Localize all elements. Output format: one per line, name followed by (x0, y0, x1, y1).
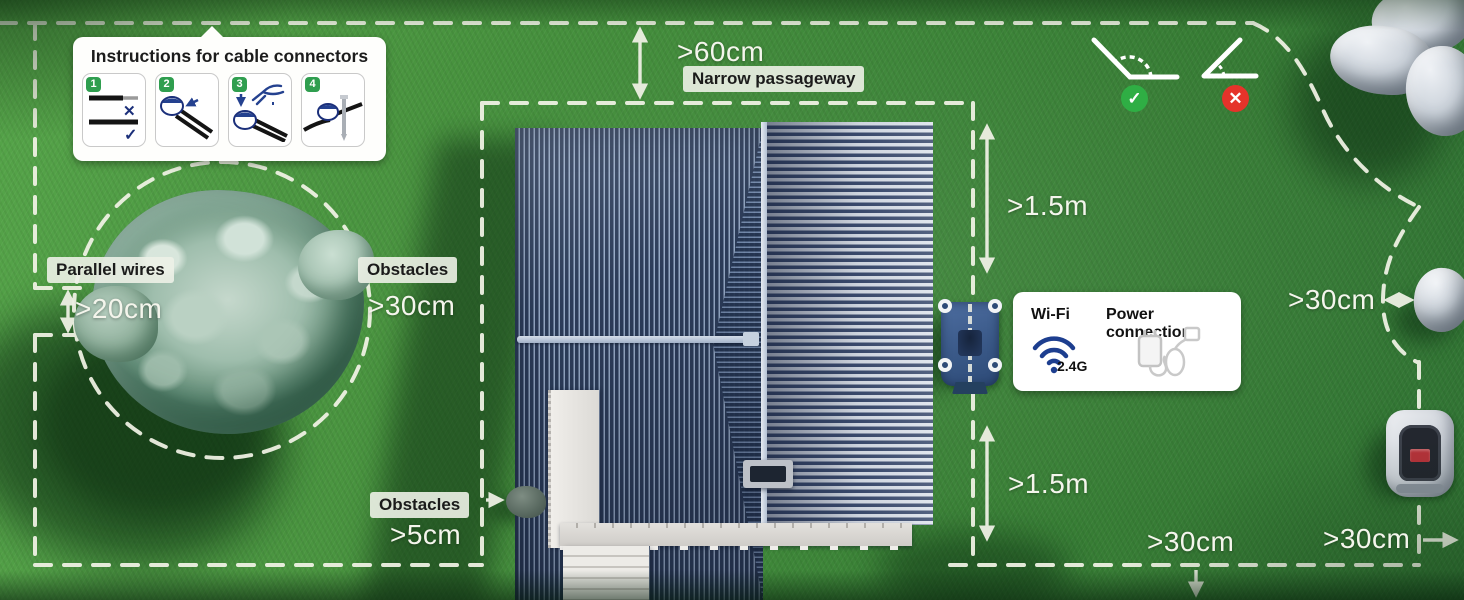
insert-wires-icon (156, 80, 218, 142)
tree-obstacle-label: Obstacles (358, 257, 457, 283)
screw-icon (988, 299, 1002, 313)
screw-icon (938, 299, 952, 313)
wire-rock-arc (1383, 207, 1419, 362)
narrow-passageway-label: Narrow passageway (683, 66, 864, 92)
wire-prep-icon: ✕ ✓ (83, 80, 145, 142)
small-stone (506, 486, 546, 518)
small-obstacle-label: Obstacles (370, 492, 469, 518)
charging-station (941, 302, 999, 386)
stairs (563, 546, 649, 600)
house-roof (515, 122, 933, 600)
mower-top-panel (1399, 425, 1441, 481)
cross-circle-icon: ✕ (1222, 85, 1249, 112)
screw-icon (938, 358, 952, 372)
step-stake-connector: 4 (301, 73, 365, 147)
clearance-below-station: >1.5m (1008, 468, 1089, 500)
lawn-scene: >60cm Narrow passageway Parallel wires >… (0, 0, 1464, 600)
roof-ridge-horizontal (517, 336, 757, 343)
tree-obstacle-value: >30cm (368, 290, 455, 322)
parallel-wires-value: >20cm (75, 293, 162, 325)
station-front-lip (952, 382, 988, 394)
step-crimp-with-pliers: 3 (228, 73, 292, 147)
connectivity-requirements: Wi-Fi Power connection 2.4G (1013, 292, 1241, 391)
mower-bumper (1396, 484, 1444, 493)
rock-right (1410, 264, 1464, 335)
right-boundary-value: >30cm (1323, 523, 1410, 555)
mower-stop-button (1410, 449, 1430, 462)
bottom-boundary-value: >30cm (1147, 526, 1234, 558)
screw-icon (988, 358, 1002, 372)
cable-connector-instructions: Instructions for cable connectors 1 ✕ ✓ … (73, 37, 386, 161)
chimney (743, 460, 793, 488)
step-insert-wires: 2 (155, 73, 219, 147)
check-circle-icon: ✓ (1121, 85, 1148, 112)
wifi-label: Wi-Fi (1031, 306, 1070, 324)
pliers-icon (229, 80, 291, 142)
step-wire-prep: 1 ✕ ✓ (82, 73, 146, 147)
obtuse-corner-icon (1088, 36, 1180, 84)
narrow-passageway-value: >60cm (677, 36, 764, 68)
svg-text:✓: ✓ (124, 127, 137, 142)
rock-clearance-value: >30cm (1288, 284, 1375, 316)
acute-corner-icon (1200, 36, 1262, 80)
power-adapter-icon (1131, 326, 1201, 384)
instructions-title: Instructions for cable connectors (73, 46, 386, 67)
roof-ridge-cap (743, 332, 759, 346)
wifi-band: 2.4G (1057, 358, 1087, 374)
parallel-wires-label: Parallel wires (47, 257, 174, 283)
svg-text:✕: ✕ (123, 103, 136, 120)
stake-connector-icon (302, 80, 364, 142)
small-obstacle-value: >5cm (390, 519, 461, 551)
robot-mower (1386, 410, 1454, 497)
clearance-above-station: >1.5m (1007, 190, 1088, 222)
station-dock-slot (958, 330, 982, 356)
deck (560, 523, 912, 546)
